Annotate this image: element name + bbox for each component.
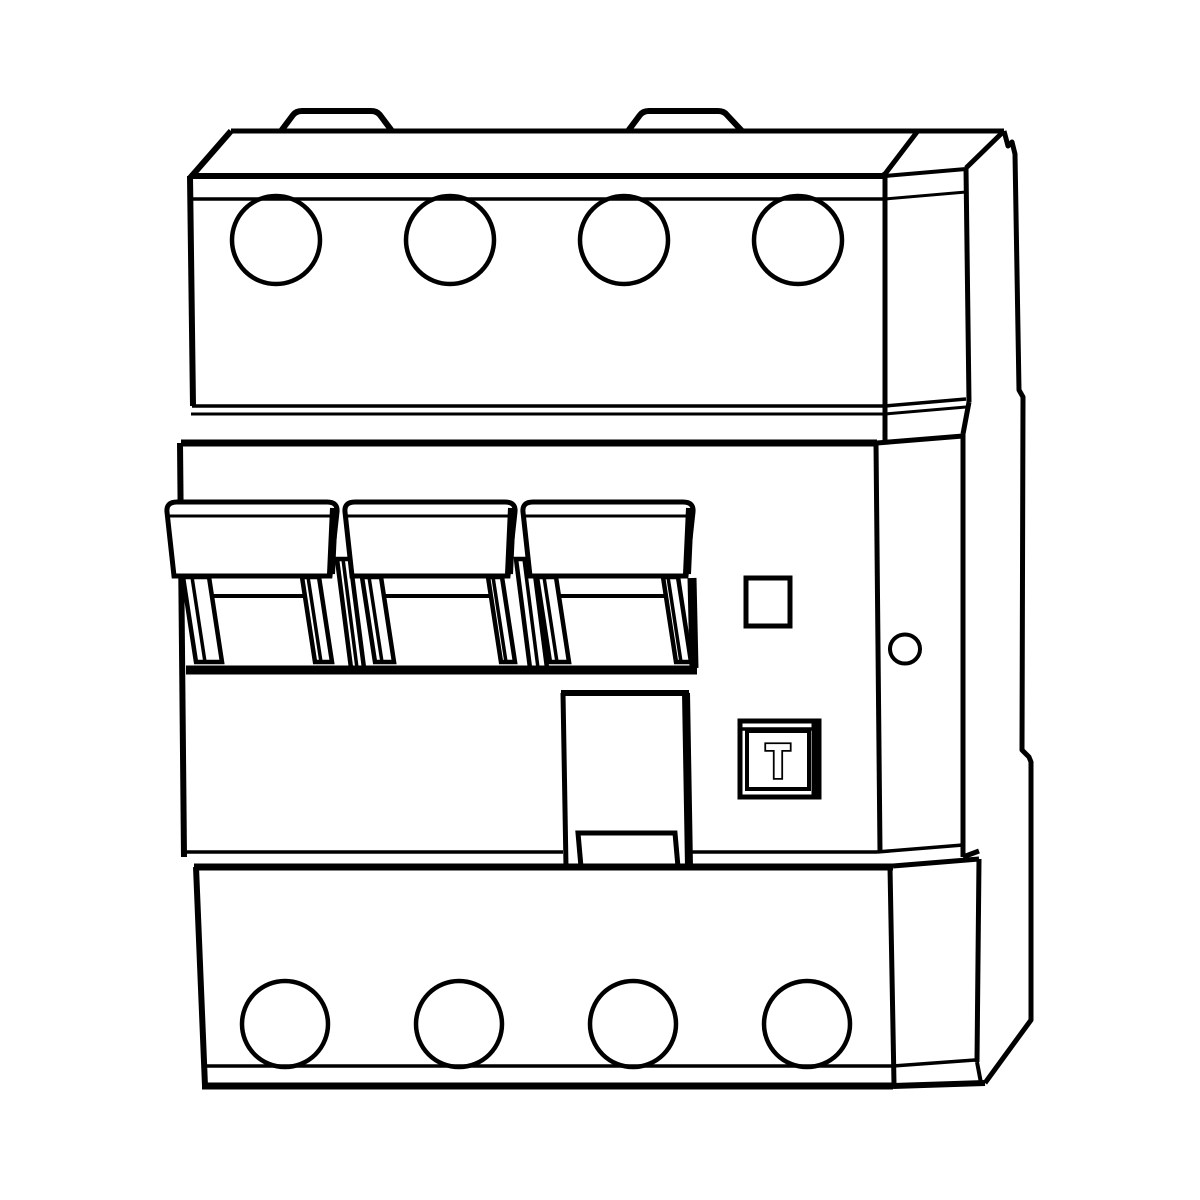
bottom-band-side-line — [893, 1060, 975, 1066]
rcd-switch-window — [561, 693, 689, 867]
rcd-window-left — [563, 693, 566, 867]
lever-leg — [302, 577, 332, 662]
top-terminal-block — [190, 111, 1004, 443]
terminal-hole-top-4 — [754, 196, 842, 284]
top-block-left-edge — [190, 176, 193, 406]
top-side-right-edge — [966, 168, 969, 402]
terminal-hole-bottom-4 — [764, 981, 850, 1067]
band1-side1 — [885, 399, 966, 406]
side-corner-seam — [966, 131, 1004, 168]
lever-leg — [362, 577, 394, 662]
band1-side-thick — [877, 436, 963, 443]
toggle-cap-shadow — [331, 508, 334, 574]
band2-side-line — [877, 845, 963, 852]
toggle-cap-shadow — [687, 508, 690, 574]
toggle-handle-1[interactable] — [167, 502, 337, 576]
breaker-drawing-svg: T — [0, 0, 1200, 1200]
top-clip-left — [281, 111, 392, 131]
terminal-hole-top-3 — [580, 196, 668, 284]
middle-block — [180, 434, 963, 857]
toggle-handle-2[interactable] — [345, 502, 515, 576]
top-clip-right — [628, 111, 742, 131]
lever-leg — [488, 577, 515, 662]
bottom-block-left-edge — [196, 867, 205, 1086]
bottom-side-right-edge — [977, 859, 979, 1062]
middle-right-edge — [876, 443, 880, 852]
terminal-hole-top-2 — [406, 196, 494, 284]
top-corner-seam — [885, 132, 917, 174]
indicator-window — [746, 578, 790, 626]
side-bevel-line — [885, 192, 966, 199]
terminal-hole-top-1 — [232, 196, 320, 284]
test-button-label: T — [764, 735, 792, 789]
din-plate-outline — [985, 131, 1031, 1083]
bottom-side-foot — [977, 1062, 981, 1083]
side-top-edge — [885, 169, 966, 176]
top-left-chamfer — [190, 131, 231, 178]
band2-side-thick — [893, 859, 979, 866]
toggle-handle-3[interactable] — [523, 502, 693, 576]
side-rivet-hole — [890, 635, 920, 664]
toggle-mechanism — [167, 502, 697, 670]
breaker-line-drawing: T — [0, 0, 1200, 1200]
din-rail-plate — [985, 131, 1031, 1083]
lever-leg — [663, 577, 691, 662]
bottom-terminal-block — [196, 859, 985, 1086]
test-button[interactable]: T — [740, 721, 819, 797]
bottom-block-right-edge — [890, 867, 894, 1084]
terminal-hole-bottom-2 — [416, 981, 502, 1067]
terminal-hole-bottom-1 — [242, 981, 328, 1067]
terminal-hole-bottom-3 — [590, 981, 676, 1067]
upper-step-band — [181, 399, 969, 443]
rcd-latch-tab — [578, 833, 678, 867]
toggle-cap-shadow — [509, 508, 512, 574]
recess-right-wall — [692, 578, 694, 668]
rcd-window-right — [686, 693, 689, 867]
bottom-band-side-thick — [893, 1083, 985, 1086]
band1-side2 — [885, 407, 966, 414]
